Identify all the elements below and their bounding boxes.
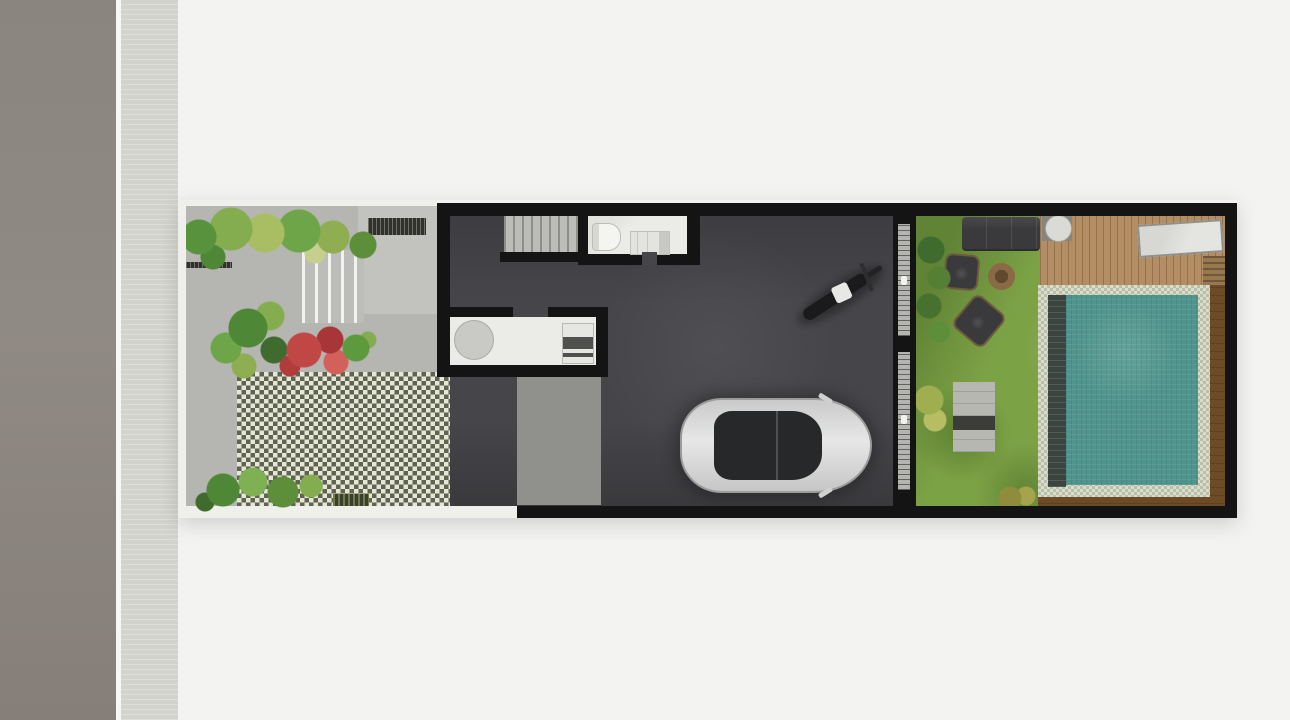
sidewalk — [121, 0, 178, 720]
bathroom-door-opening — [642, 252, 657, 265]
garden-street-fence — [178, 200, 186, 518]
deck-round-table — [1045, 215, 1072, 242]
parked-car — [680, 398, 872, 493]
sliding-door-lower — [898, 352, 910, 490]
outer-wall-bottom — [517, 506, 1237, 518]
deck-steps — [1203, 256, 1225, 288]
small-green-bush — [336, 326, 378, 368]
car-roof-glass — [714, 411, 822, 480]
outdoor-sofa — [962, 217, 1040, 251]
floor-plan — [178, 200, 1237, 518]
kitchen-round-table — [454, 320, 494, 360]
kitchen-wall — [437, 365, 608, 377]
deck-lounger — [1137, 219, 1224, 258]
sliding-door-handle — [901, 415, 907, 424]
toilet — [592, 223, 621, 251]
kitchen-cooktop — [562, 323, 594, 364]
carport-apron — [517, 374, 601, 505]
street-edge-trees — [183, 203, 378, 273]
backyard-bush — [913, 220, 957, 355]
low-hedge — [333, 494, 369, 506]
street-road — [0, 0, 116, 720]
lawn-bench-steps — [953, 382, 995, 452]
sliding-door-upper — [898, 224, 910, 336]
fire-pit — [988, 263, 1015, 290]
outer-wall-top — [437, 203, 1237, 216]
site-plan-canvas — [0, 0, 1290, 720]
pool-overflow-edge — [1048, 295, 1066, 487]
outer-wall-right — [1225, 203, 1237, 518]
wall-under-stairs — [500, 252, 584, 262]
sliding-door-handle — [901, 276, 907, 285]
house-wall-left — [437, 203, 450, 377]
bottom-palm-plants — [193, 456, 345, 518]
pool-water — [1066, 295, 1198, 485]
staircase — [504, 216, 580, 252]
